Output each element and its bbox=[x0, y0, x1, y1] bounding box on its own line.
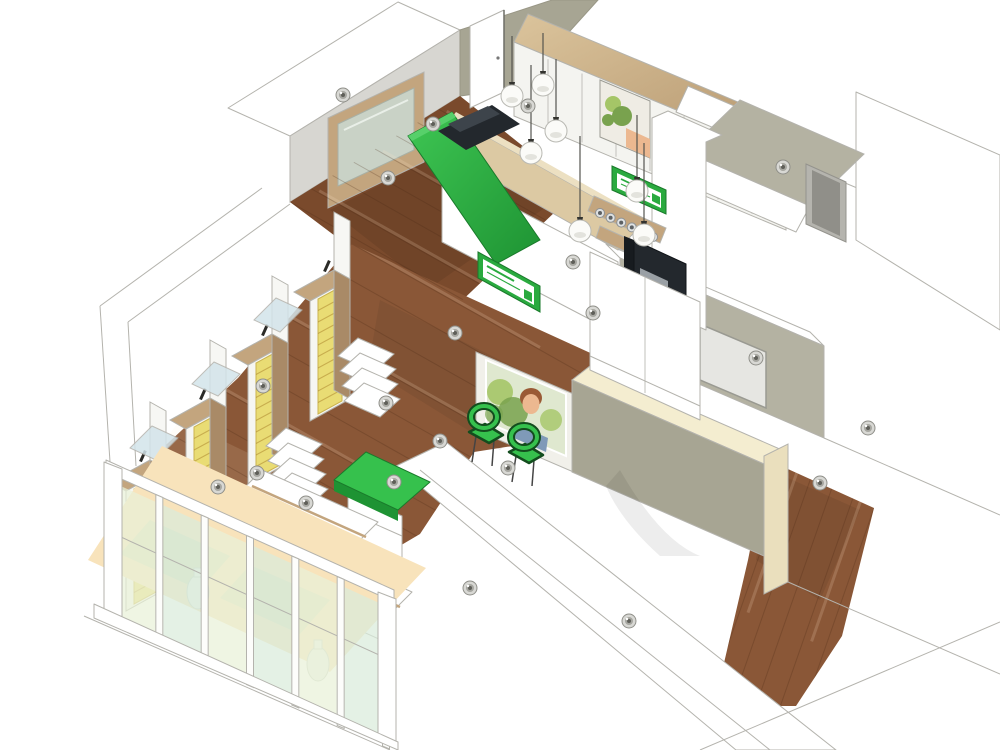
spotlight bbox=[521, 99, 535, 113]
spotlight bbox=[387, 475, 401, 489]
spotlight bbox=[463, 581, 477, 595]
mullion bbox=[292, 556, 299, 708]
spotlight bbox=[861, 421, 875, 435]
spotlight bbox=[622, 614, 636, 628]
spotlight bbox=[448, 326, 462, 340]
spotlight bbox=[250, 466, 264, 480]
mullion bbox=[337, 577, 344, 729]
spotlight bbox=[381, 171, 395, 185]
spotlight bbox=[586, 306, 600, 320]
spotlight bbox=[379, 396, 393, 410]
spotlight bbox=[426, 117, 440, 131]
store-interior-rendering: Pharmacy shop interior - 3D isometric cu… bbox=[0, 0, 1000, 750]
mullion bbox=[156, 495, 163, 647]
spotlight bbox=[566, 255, 580, 269]
spotlight bbox=[256, 379, 270, 393]
mullion bbox=[247, 536, 254, 688]
poster-face bbox=[523, 394, 540, 414]
spotlight bbox=[299, 496, 313, 510]
spotlight bbox=[776, 160, 790, 174]
facade-end-post bbox=[104, 462, 122, 628]
spotlight bbox=[433, 434, 447, 448]
spotlight bbox=[749, 351, 763, 365]
facade-end-post bbox=[378, 592, 396, 748]
mullion bbox=[201, 515, 208, 667]
spotlight bbox=[813, 476, 827, 490]
spotlight bbox=[336, 88, 350, 102]
spotlight bbox=[501, 461, 515, 475]
back-office-door bbox=[470, 10, 504, 108]
spotlight bbox=[211, 480, 225, 494]
